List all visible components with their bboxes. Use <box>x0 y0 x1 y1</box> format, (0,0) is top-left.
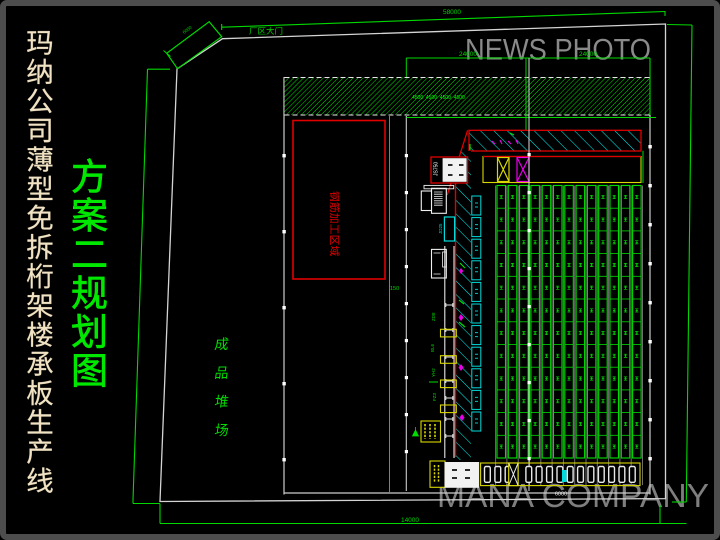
svg-text:58000: 58000 <box>443 9 461 16</box>
svg-text:150: 150 <box>390 286 399 292</box>
svg-text:24000: 24000 <box>459 51 477 58</box>
svg-text:24000: 24000 <box>579 51 597 58</box>
svg-text:YH2: YH2 <box>431 368 436 377</box>
svg-text:14000: 14000 <box>401 517 419 524</box>
svg-text:NEWS PHOTO: NEWS PHOTO <box>465 34 651 67</box>
svg-text:JS750: JS750 <box>434 162 440 176</box>
svg-text:JD25: JD25 <box>438 223 443 234</box>
svg-text:6000: 6000 <box>555 492 567 498</box>
svg-text:4500 4500 4500 4500: 4500 4500 4500 4500 <box>412 95 465 101</box>
svg-text:ZD8: ZD8 <box>431 312 436 321</box>
svg-text:BL6: BL6 <box>430 343 435 352</box>
svg-text:FZ3: FZ3 <box>432 393 437 401</box>
